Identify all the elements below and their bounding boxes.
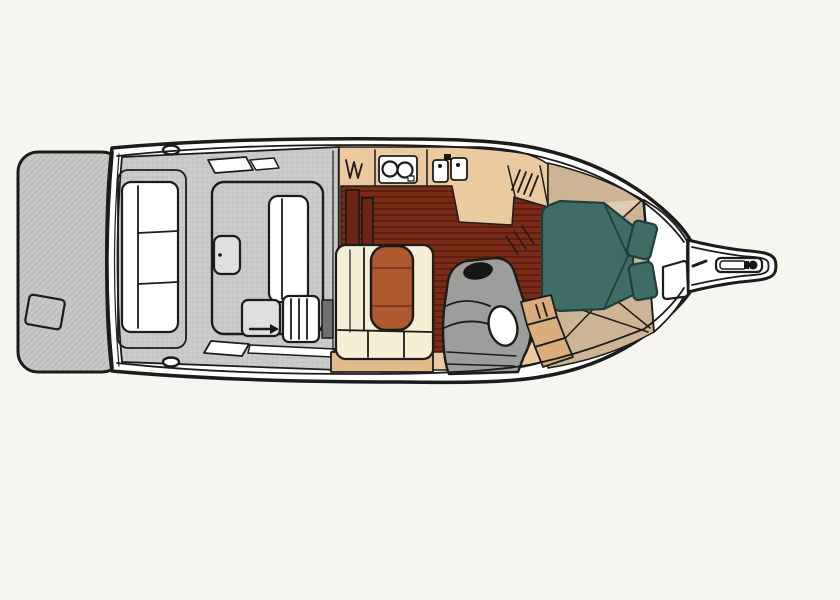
sink-drain-right xyxy=(456,163,460,167)
sink-basin-left xyxy=(433,160,448,182)
salon-table xyxy=(371,246,413,330)
sink-basin-right xyxy=(451,158,467,180)
stern-bench-seat xyxy=(122,182,178,332)
roller-pin xyxy=(744,261,749,269)
companionway-step-unit xyxy=(283,296,319,342)
stove-burner-right xyxy=(398,163,413,178)
anchor-locker-hatch xyxy=(663,261,688,299)
vberth-mattress xyxy=(542,201,633,311)
gunwale-step-pad-top xyxy=(208,157,253,173)
cockpit xyxy=(118,146,340,371)
cockpit-side-seat xyxy=(269,196,308,302)
boat-floor-plan xyxy=(0,0,840,600)
door-latch xyxy=(218,253,222,257)
stern-cleat-starboard xyxy=(163,358,179,367)
gunwale-step-pad-bottom xyxy=(204,341,249,356)
salon-settee xyxy=(331,245,433,372)
sink-drain-left xyxy=(438,164,442,168)
sink-faucet xyxy=(444,154,451,160)
gunwale-step-pad-top-small xyxy=(250,158,279,170)
stove-burner-left xyxy=(383,162,398,177)
boat-floor-plan-page xyxy=(0,0,840,600)
vberth-pillow-bottom xyxy=(628,261,658,301)
stove-control xyxy=(408,176,414,181)
engine-access-door xyxy=(214,236,240,274)
roller-end-cap xyxy=(749,261,758,270)
engine-vent xyxy=(322,300,333,338)
